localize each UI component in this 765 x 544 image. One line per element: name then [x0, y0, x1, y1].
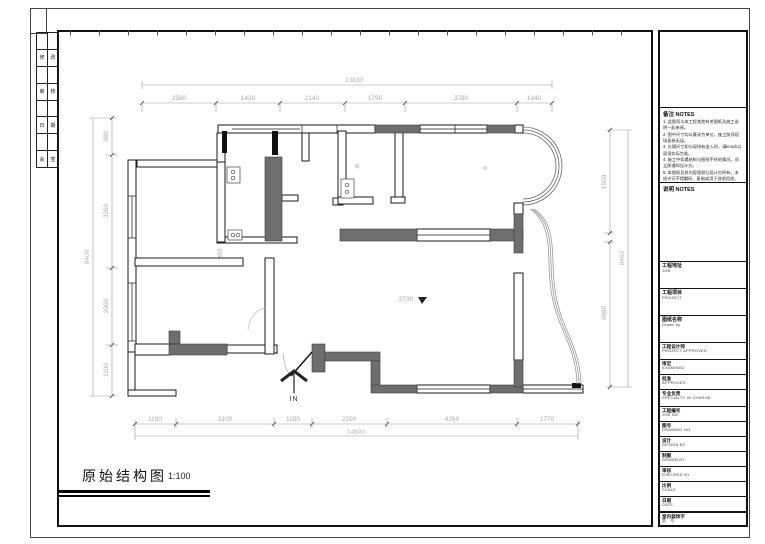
title-underline: [57, 490, 210, 493]
dimensions-left: [89, 116, 118, 398]
tb-row-sublabel: JOB NO.: [662, 413, 744, 418]
entry-arrow: [281, 371, 307, 393]
tb-row-checked-by: 审核CHECKED BY: [660, 467, 746, 482]
floor-plan-drawing: 13830 2580 1430 2140 1790 3780 1340 1180…: [0, 0, 765, 544]
tb-row-sublabel: SPECIALTY IN CHARGE: [662, 396, 744, 401]
tb-row-specialty: 专业负责SPECIALTY IN CHARGE: [660, 390, 746, 407]
dim-bottom-seg: 2200: [342, 416, 357, 423]
entry-door: [248, 308, 312, 376]
note-item: 5. 本图纸及其内容版权归设计方所有，未经许可不得翻印、复制或用于其他用途。: [663, 170, 743, 183]
title-block-logo-area: [660, 32, 746, 108]
dim-top-seg: 1430: [241, 95, 256, 102]
notes-header: 备注 NOTES: [663, 110, 743, 118]
drawing-title: 原始结构图: [82, 466, 167, 486]
dim-left-seg: 980: [103, 130, 110, 141]
tb-row-sublabel: EXAMINED: [662, 366, 744, 371]
tb-row-drawing-name: 图纸名称Drawn by: [660, 316, 746, 343]
dim-bottom-seg: 1150: [286, 416, 300, 423]
tb-row-job: 工程地址JOB: [660, 262, 746, 289]
dim-top-seg: 2580: [172, 95, 187, 102]
ceiling-height-label: 2730: [399, 296, 414, 303]
dimensions-right: [604, 128, 632, 389]
bay-window-arc: [523, 127, 562, 205]
tb-row-sublabel: DRAWING NO.: [662, 428, 744, 433]
tb-row-sublabel: DRAWN BY: [662, 458, 744, 463]
title-block-notes: 备注 NOTES 1. 此图须与本工程其他有关图纸及施工说明一起参阅。 2. 图…: [660, 108, 746, 183]
dim-top-seg: 3780: [454, 95, 469, 102]
dim-bottom-seg: 1180: [148, 416, 162, 423]
dim-right-seg: 4860: [601, 305, 608, 320]
tb-row-sublabel: PROJECT APPROVED: [662, 349, 744, 354]
dim-bottom-seg: 4260: [445, 416, 460, 423]
tb-row-designer: 工程设计师PROJECT APPROVED: [660, 343, 746, 360]
dim-top-total: 13830: [345, 77, 363, 84]
dim-right-seg: 1500: [601, 174, 608, 189]
curved-wall: [530, 209, 581, 384]
dim-right-total: 8460: [619, 250, 626, 265]
note-item: 1. 此图须与本工程其他有关图纸及施工说明一起参阅。: [663, 119, 743, 132]
tb-row-sublabel: DATE: [662, 503, 744, 508]
dim-left-seg: 1100: [103, 363, 110, 377]
tb-row-approved: 批准APPROVED: [660, 375, 746, 390]
tb-row-license: 室内装饰字第 号: [660, 512, 746, 525]
notes2-header: 说明 NOTES: [663, 185, 743, 193]
dimensions-top: [140, 81, 554, 112]
tb-row-sublabel: Drawn by: [662, 323, 744, 328]
tb-row-sublabel: SCALE: [662, 488, 744, 493]
tb-row-project: 工程项目PROJECT: [660, 289, 746, 316]
tb-row-sublabel: JOB: [662, 269, 744, 274]
title-block-rows: 工程地址JOB 工程项目PROJECT 图纸名称Drawn by 工程设计师PR…: [660, 262, 746, 525]
drawing-scale: 1:100: [168, 471, 191, 481]
note-item: 2. 图中尺寸均以毫米为单位，施工前须现场复核无误。: [663, 132, 743, 145]
entry-label: IN: [290, 396, 299, 403]
dim-bottom-total: 14500: [347, 429, 365, 436]
note-item: 4. 施工中如遇结构与图纸不符的情况，须立即通知设计方。: [663, 157, 743, 170]
tb-row-design-by: 设计DESIGN BY: [660, 437, 746, 452]
tb-row-scale: 比例SCALE: [660, 482, 746, 497]
dim-top-seg: 1790: [368, 95, 383, 102]
dim-interior: 980: [217, 248, 224, 259]
dim-bottom-seg: 1770: [540, 416, 555, 423]
tb-row-sublabel: PROJECT: [662, 296, 744, 301]
dim-left-seg: 2060: [103, 298, 110, 313]
dim-top-seg: 1340: [527, 95, 542, 102]
tb-row-sublabel: CHECKED BY: [662, 473, 744, 478]
dim-bottom-seg: 3100: [218, 416, 233, 423]
dim-left-seg: 3260: [103, 203, 110, 218]
tb-row-sublabel: APPROVED: [662, 381, 744, 386]
dim-top-seg: 2140: [305, 95, 320, 102]
tb-row-examined: 审定EXAMINED: [660, 360, 746, 375]
cad-sheet: 修改 审核 日期 会签 13830 2580 14: [0, 0, 765, 544]
bedroom-door-arc: [248, 308, 265, 330]
title-underline-2: [57, 495, 210, 497]
note-item: 3. 分隔尺寸如与现场有出入时，请knock以现场实际为准。: [663, 144, 743, 157]
tb-row-sublabel: 第 号: [662, 519, 744, 524]
tb-row-job-no: 工程编号JOB NO.: [660, 407, 746, 422]
dim-left-total: 8400: [84, 249, 91, 264]
title-block-notes2: 说明 NOTES: [660, 183, 746, 262]
title-block: 备注 NOTES 1. 此图须与本工程其他有关图纸及施工说明一起参阅。 2. 图…: [658, 30, 748, 527]
tb-row-drawn-by: 制图DRAWN BY: [660, 452, 746, 467]
ceiling-height-marker: [418, 297, 427, 304]
tb-row-sublabel: DESIGN BY: [662, 443, 744, 448]
tb-row-date: 日期DATE: [660, 497, 746, 512]
tb-row-drawing-no: 图号DRAWING NO.: [660, 422, 746, 437]
